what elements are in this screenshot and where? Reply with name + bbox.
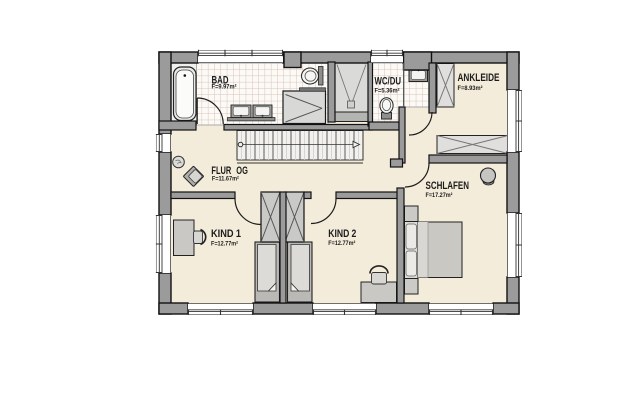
svg-text:KIND 1: KIND 1 xyxy=(211,228,241,240)
svg-text:F=5.36m²: F=5.36m² xyxy=(375,87,400,94)
svg-text:F=12.77m²: F=12.77m² xyxy=(211,241,238,248)
svg-text:F=12.77m²: F=12.77m² xyxy=(328,240,355,247)
svg-text:KIND 2: KIND 2 xyxy=(328,228,356,240)
svg-text:WC/DU: WC/DU xyxy=(375,76,402,88)
svg-text:SCHLAFEN: SCHLAFEN xyxy=(426,180,470,192)
svg-text:F=17.27m²: F=17.27m² xyxy=(426,192,453,199)
svg-text:ANKLEIDE: ANKLEIDE xyxy=(458,72,500,84)
svg-text:F=8.93m²: F=8.93m² xyxy=(458,85,483,92)
svg-text:F=9.97m²: F=9.97m² xyxy=(212,84,237,91)
svg-text:F=11.67m²: F=11.67m² xyxy=(212,175,239,182)
